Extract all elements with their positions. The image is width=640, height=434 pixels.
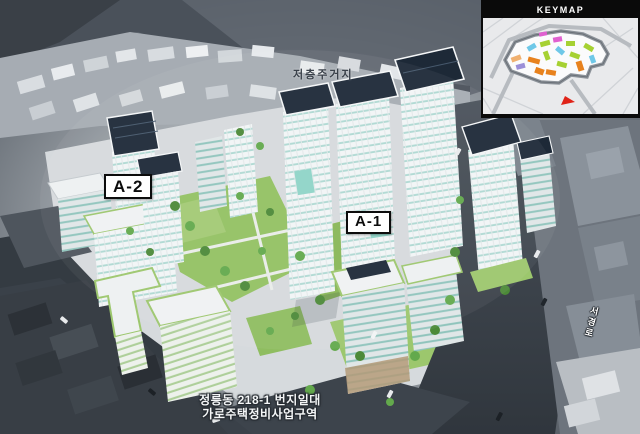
caption-line1: 정릉동 218-1 번지일대 [165, 393, 355, 407]
keymap-inset: KEYMAP [481, 0, 640, 118]
keymap-title: KEYMAP [483, 2, 638, 18]
low-rise-area-label: 저층주거지 [293, 66, 354, 82]
keymap-map [483, 18, 638, 114]
project-caption: 정릉동 218-1 번지일대 가로주택정비사업구역 [165, 393, 355, 421]
caption-line2: 가로주택정비사업구역 [165, 407, 355, 421]
block-label-a2: A-2 [104, 174, 152, 199]
aerial-rendering: 저층주거지 A-2 A-1 서경로 정릉동 218-1 번지일대 가로주택정비사… [0, 0, 640, 434]
block-label-a1: A-1 [346, 211, 391, 234]
